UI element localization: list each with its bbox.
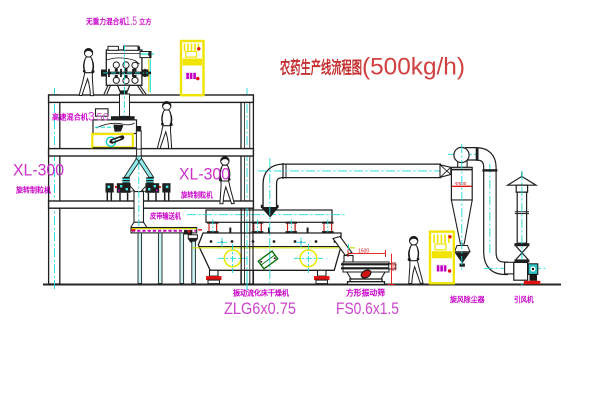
svg-text:方形振动筛: 方形振动筛 [346, 288, 385, 298]
svg-text:ZLG6x0.75: ZLG6x0.75 [224, 299, 296, 318]
svg-text:高速混合机: 高速混合机 [52, 113, 89, 122]
svg-text:Φ500: Φ500 [455, 181, 467, 186]
svg-text:XL-300: XL-300 [13, 162, 64, 180]
svg-text:XL-300: XL-300 [179, 166, 230, 184]
svg-text:旋转制粒机: 旋转制粒机 [15, 186, 52, 195]
svg-text:皮带输送机: 皮带输送机 [149, 212, 181, 221]
svg-text:FS0.6x1.5: FS0.6x1.5 [336, 299, 399, 318]
svg-text:3: 3 [88, 110, 95, 124]
svg-text:旋转制粒机: 旋转制粒机 [180, 191, 213, 200]
svg-text:无重力混合机: 无重力混合机 [85, 17, 126, 26]
svg-text:1500: 1500 [358, 248, 369, 254]
svg-text:(500kg/h): (500kg/h) [362, 54, 465, 81]
svg-text:1.5: 1.5 [126, 16, 138, 28]
svg-text:立方: 立方 [139, 17, 152, 26]
svg-text:50: 50 [97, 112, 109, 124]
svg-text:旋风除尘器: 旋风除尘器 [449, 295, 485, 304]
svg-text:580: 580 [392, 262, 398, 271]
svg-text:农药生产线流程图: 农药生产线流程图 [279, 58, 362, 78]
svg-text:引风机: 引风机 [514, 295, 534, 304]
svg-text:振动流化床干燥机: 振动流化床干燥机 [233, 289, 290, 298]
